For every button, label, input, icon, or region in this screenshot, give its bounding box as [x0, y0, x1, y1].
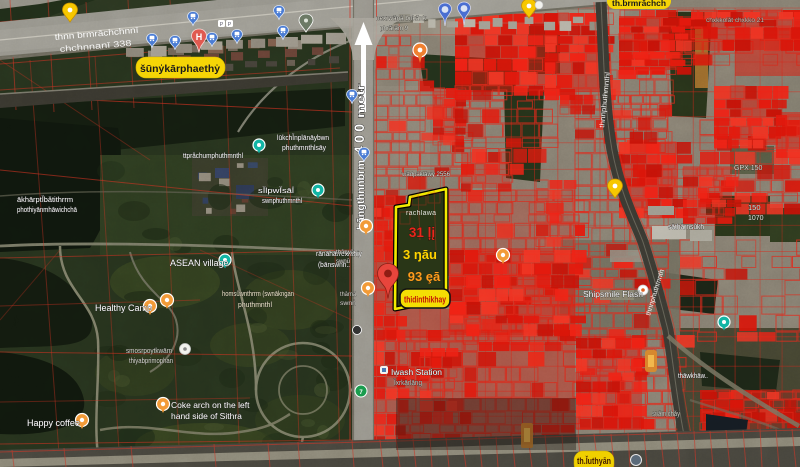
svg-text:th.Ǐuthyān: th.Ǐuthyān: [577, 455, 611, 467]
svg-text:93 ȩā: 93 ȩā: [408, 269, 441, 284]
svg-text:chxkkolǎt chxkko 21: chxkkolǎt chxkko 21: [706, 17, 764, 24]
svg-text:ASEAN village: ASEAN village: [170, 258, 229, 268]
svg-text:swnn̍: swnn̍: [340, 298, 356, 307]
svg-text:phuthmnthl: phuthmnthl: [238, 300, 272, 309]
svg-text:3 ŋāu: 3 ŋāu: [403, 247, 437, 262]
svg-text:phuthmnthlsāy: phuthmnthlsāy: [282, 143, 326, 152]
svg-text:ttprǎchumphuthmnthl: ttprǎchumphuthmnthl: [183, 151, 243, 160]
svg-text:metr: metr: [356, 84, 367, 118]
svg-text:swnū: swnū: [336, 258, 350, 265]
svg-text:snām chǎy: snām chǎy: [652, 411, 680, 418]
svg-text:Ǐxrkārlāng: Ǐxrkārlāng: [393, 378, 422, 387]
svg-text:sāthārnsŭkh: sāthārnsŭkh: [668, 222, 704, 231]
svg-text:150: 150: [748, 203, 761, 212]
svg-text:swnphuthmnthl: swnphuthmnthl: [262, 198, 302, 205]
svg-text:Coke arch on the left: Coke arch on the left: [171, 400, 250, 410]
svg-text:wǎdpāklǎwy 2556: wǎdpāklǎwy 2556: [401, 171, 450, 178]
svg-text:1070: 1070: [748, 215, 764, 222]
svg-text:th.brmrāchch: th.brmrāchch: [612, 0, 666, 8]
svg-text:šūny̍kārphaethy̍: šūny̍kārphaethy̍: [140, 64, 220, 75]
svg-text:sǏlpwǏsāl̍: sǏlpwǏsāl̍: [258, 185, 294, 195]
svg-text:thārwā: thārwā: [336, 249, 354, 256]
svg-text:phothiyānmhāwichchā: phothiyānmhāwichchā: [17, 205, 78, 214]
svg-text:Iwash Station: Iwash Station: [391, 367, 442, 377]
svg-text:GPX 150: GPX 150: [734, 165, 763, 172]
svg-text:Healthy Camp: Healthy Camp: [95, 303, 152, 313]
svg-text:Happy coffee: Happy coffee: [27, 418, 80, 428]
svg-text:homsŭwnthrrm (swnākngan: homsŭwnthrrm (swnākngan: [222, 289, 294, 298]
svg-text:31 ļį: 31 ļį: [409, 225, 436, 240]
svg-text:P: P: [220, 22, 224, 28]
svg-text:lūkchǏnplānāybwn: lūkchǏnplānāybwn: [277, 133, 329, 142]
svg-text:Shipsmile Flash: Shipsmile Flash: [583, 289, 643, 299]
svg-text:phrǎrām 9: phrǎrām 9: [380, 25, 408, 32]
svg-text:rachlawa: rachlawa: [406, 210, 436, 217]
svg-text:thārnā: thārnā: [340, 291, 356, 298]
svg-text:smosrpoytkwām: smosrpoytkwām: [126, 346, 172, 355]
svg-text:nexrwānā bnkǎnk: nexrwānā bnkǎnk: [376, 15, 427, 22]
svg-text:hand side of Sithra: hand side of Sithra: [171, 411, 242, 421]
svg-text:ākhārptǏbǎtithrrm: ākhārptǏbǎtithrrm: [17, 195, 73, 204]
svg-text:thidinthikhay: thidinthikhay: [404, 295, 446, 306]
svg-text:thāwkhāw..: thāwkhāw..: [678, 371, 708, 380]
svg-text:thiyabprimophan: thiyabprimophan: [129, 356, 173, 365]
svg-text:H: H: [196, 32, 203, 42]
svg-text:P: P: [228, 22, 232, 28]
